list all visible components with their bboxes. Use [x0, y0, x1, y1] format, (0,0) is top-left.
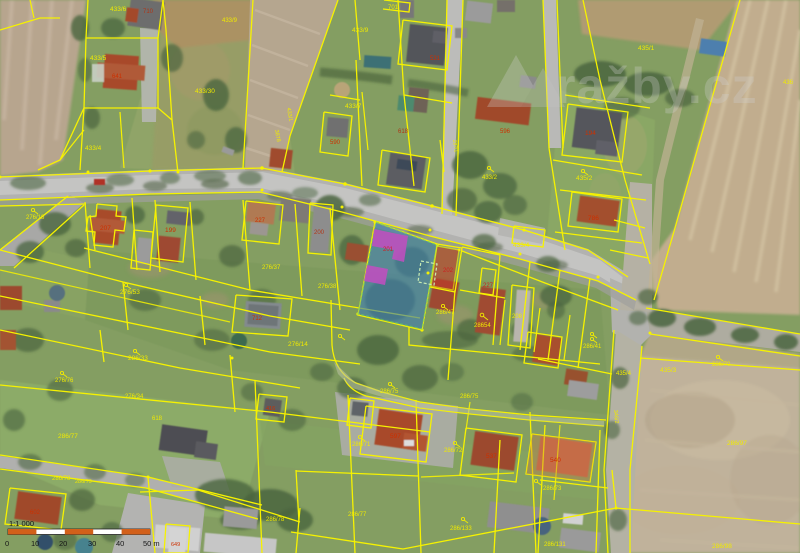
svg-text:208: 208: [512, 314, 523, 320]
svg-text:286/78: 286/78: [266, 517, 285, 523]
svg-text:199: 199: [165, 227, 176, 234]
svg-text:433/9: 433/9: [352, 27, 369, 34]
svg-text:286/131: 286/131: [544, 542, 566, 548]
svg-text:531: 531: [430, 56, 441, 62]
svg-text:346/2: 346/2: [612, 410, 619, 424]
svg-text:435/3: 435/3: [660, 367, 677, 374]
svg-text:416: 416: [266, 406, 275, 412]
svg-text:433/30: 433/30: [195, 88, 215, 95]
svg-text:286/98: 286/98: [712, 543, 732, 550]
svg-text:435/2: 435/2: [576, 175, 593, 182]
svg-text:641: 641: [112, 74, 123, 80]
svg-text:276/53: 276/53: [120, 289, 140, 296]
svg-text:200: 200: [314, 230, 325, 236]
svg-text:649: 649: [171, 542, 180, 548]
svg-text:276/14: 276/14: [288, 341, 308, 348]
svg-text:701: 701: [388, 5, 399, 11]
svg-text:10: 10: [31, 539, 39, 548]
svg-text:286/73: 286/73: [543, 486, 562, 492]
svg-text:286/133: 286/133: [450, 526, 472, 532]
svg-text:286/78: 286/78: [52, 476, 71, 482]
svg-text:540: 540: [550, 457, 561, 464]
svg-text:286/70: 286/70: [712, 362, 731, 368]
svg-text:286/71: 286/71: [352, 442, 371, 448]
svg-text:276/76: 276/76: [55, 378, 74, 384]
svg-text:ražby.cz: ražby.cz: [556, 58, 758, 114]
svg-text:276/18: 276/18: [26, 215, 45, 221]
svg-text:227: 227: [483, 283, 494, 289]
svg-text:433/7: 433/7: [345, 103, 362, 110]
svg-text:433/5: 433/5: [90, 55, 107, 62]
svg-text:433/6: 433/6: [110, 6, 127, 13]
svg-text:286/33: 286/33: [128, 355, 148, 362]
svg-text:710: 710: [143, 9, 154, 15]
svg-text:712: 712: [252, 316, 263, 322]
svg-text:40: 40: [116, 539, 124, 548]
svg-text:602: 602: [30, 510, 41, 516]
svg-text:286/75: 286/75: [380, 389, 399, 395]
svg-text:276/34: 276/34: [125, 394, 144, 400]
svg-text:286/75: 286/75: [460, 394, 479, 400]
svg-text:276/38: 276/38: [318, 284, 337, 290]
svg-text:433/2: 433/2: [482, 175, 498, 181]
svg-text:618: 618: [398, 129, 409, 135]
svg-text:590: 590: [330, 140, 341, 146]
svg-text:28654: 28654: [474, 323, 491, 329]
svg-text:618: 618: [152, 416, 163, 422]
svg-text:596: 596: [500, 129, 511, 135]
svg-text:0: 0: [5, 539, 9, 548]
svg-text:286/79: 286/79: [75, 479, 92, 485]
svg-text:433/4: 433/4: [513, 242, 530, 249]
svg-text:207: 207: [100, 225, 111, 232]
svg-text:1:1 000: 1:1 000: [9, 519, 34, 528]
svg-text:286/77: 286/77: [58, 433, 78, 440]
svg-text:202: 202: [443, 268, 454, 274]
svg-text:286/97: 286/97: [727, 440, 747, 447]
svg-text:436: 436: [783, 80, 794, 86]
svg-text:286/72: 286/72: [444, 448, 463, 454]
svg-text:50 m: 50 m: [143, 539, 160, 548]
svg-text:537: 537: [486, 453, 497, 460]
svg-text:227: 227: [255, 218, 266, 224]
svg-text:433/4: 433/4: [85, 145, 102, 152]
svg-text:194: 194: [585, 130, 596, 137]
svg-text:435/1: 435/1: [638, 45, 655, 52]
svg-text:435/4: 435/4: [616, 371, 632, 377]
svg-text:286/47: 286/47: [436, 310, 455, 316]
svg-text:786: 786: [588, 215, 599, 222]
svg-text:286/41: 286/41: [583, 344, 602, 350]
svg-text:433/9: 433/9: [222, 18, 238, 24]
svg-text:201: 201: [383, 247, 394, 253]
svg-text:597: 597: [390, 433, 401, 440]
svg-text:30: 30: [88, 539, 96, 548]
svg-text:276/37: 276/37: [262, 265, 281, 271]
svg-text:286/77: 286/77: [348, 512, 367, 518]
svg-text:20: 20: [59, 539, 67, 548]
